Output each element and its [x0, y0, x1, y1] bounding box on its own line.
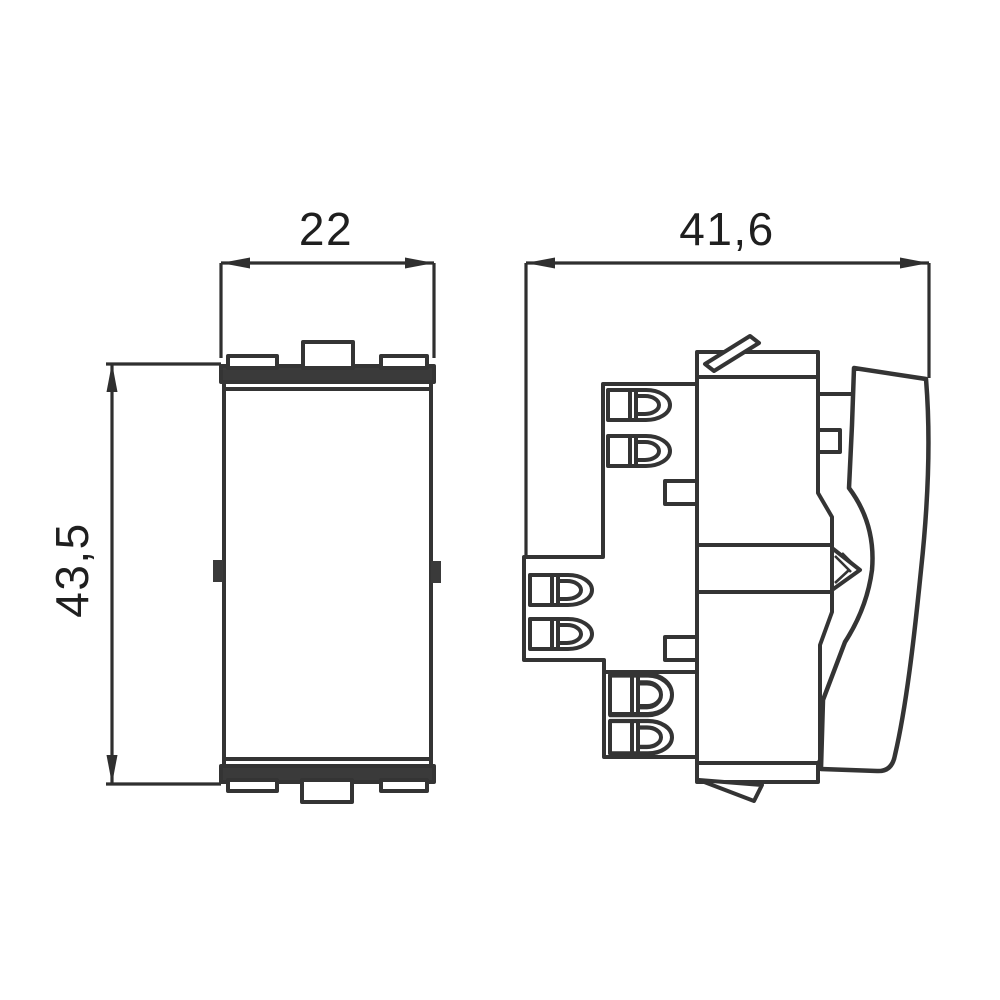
- top-left-clip: [228, 356, 277, 368]
- body-right-lug: [818, 430, 840, 452]
- body-left-lug-upper: [665, 481, 697, 504]
- arrowhead-right-icon: [900, 258, 929, 269]
- terminal-screw: [530, 575, 592, 605]
- body-bottom-band: [697, 763, 818, 782]
- dimension-drawing: 22 41,6 43,5: [0, 0, 1000, 1000]
- bottom-mounting-clip: [699, 780, 762, 801]
- side-depth-label: 41,6: [679, 203, 775, 255]
- arrowhead-left-icon: [526, 258, 555, 269]
- front-view: [213, 342, 441, 802]
- terminal-screw: [610, 675, 672, 715]
- terminal-screw: [610, 721, 672, 753]
- arrowhead-left-icon: [221, 258, 250, 269]
- side-view: [524, 336, 928, 801]
- arrowhead-right-icon: [405, 258, 434, 269]
- body-left-lug-lower: [665, 637, 697, 660]
- top-center-tab: [303, 342, 353, 368]
- arrowhead-up-icon: [107, 363, 118, 392]
- terminal-screw: [608, 436, 670, 466]
- technical-drawing-page: 22 41,6 43,5: [0, 0, 1000, 1000]
- terminal-screw: [608, 390, 670, 420]
- front-width-label: 22: [299, 203, 353, 255]
- bottom-left-clip: [228, 780, 277, 791]
- terminal-screw: [530, 619, 592, 649]
- right-side-latch: [431, 561, 441, 583]
- bottom-center-tab: [302, 780, 352, 802]
- dimension-front-height: 43,5: [46, 363, 221, 784]
- body-right-edge-upper: [818, 377, 832, 545]
- bottom-right-clip: [381, 780, 427, 791]
- arrowhead-down-icon: [107, 755, 118, 784]
- dimension-front-width: 22: [221, 203, 434, 358]
- front-height-label: 43,5: [46, 522, 98, 618]
- left-side-latch: [213, 560, 223, 582]
- actuator-bar: [697, 545, 832, 592]
- actuator-tip: [832, 548, 860, 590]
- top-right-clip: [381, 356, 427, 368]
- dimension-annotations: 22 41,6 43,5: [46, 203, 929, 784]
